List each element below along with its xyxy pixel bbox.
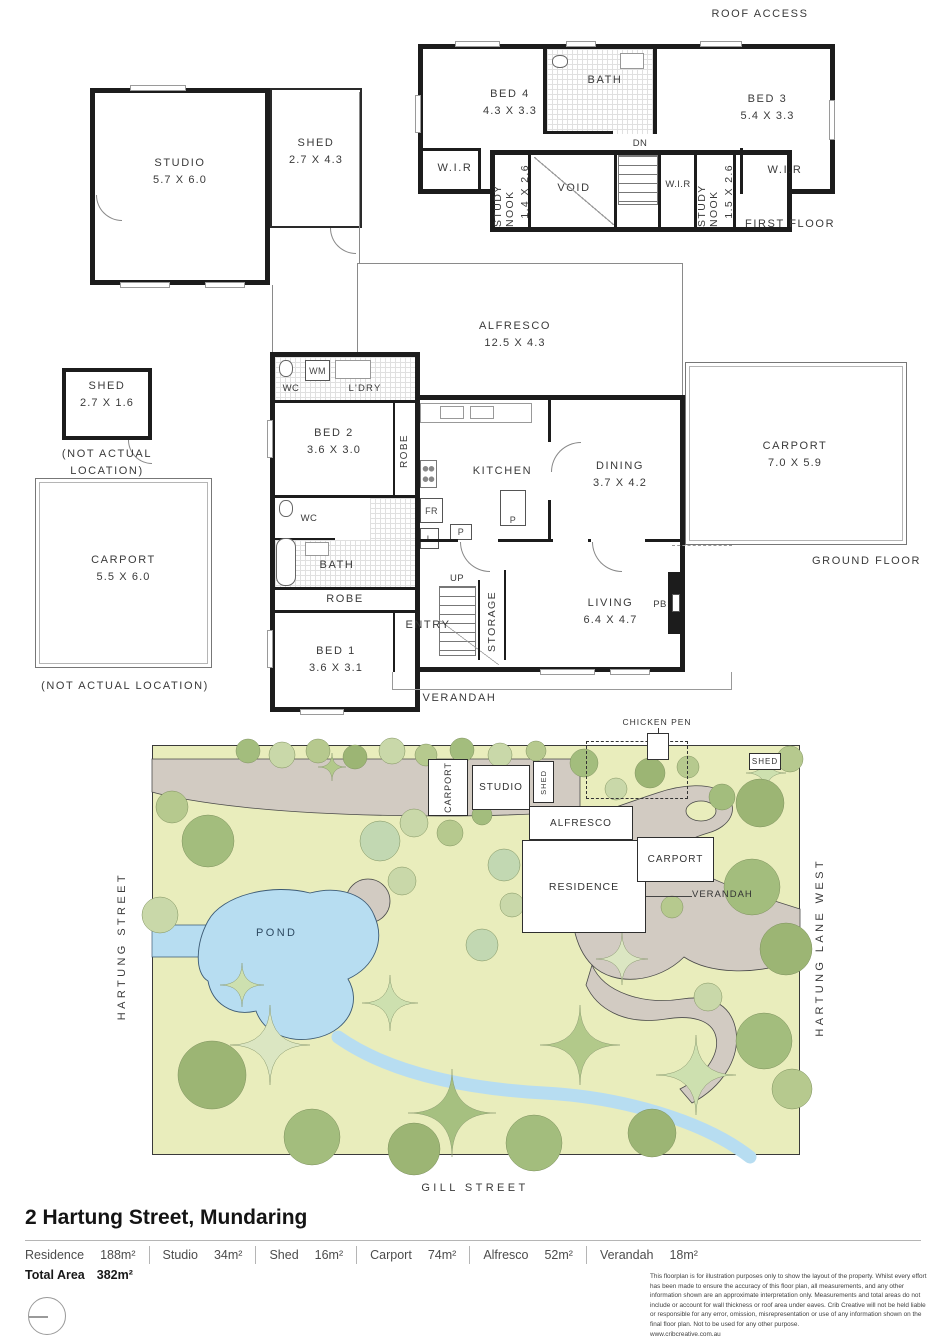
sink-icon [470, 406, 494, 419]
window [130, 85, 186, 91]
fireplace-inner [672, 594, 680, 612]
area-item: Carport74m² [357, 1246, 470, 1264]
area-summary: Residence188m² Studio34m² Shed16m² Carpo… [25, 1246, 711, 1264]
verandah-outline [392, 672, 732, 690]
street-right-label: HARTUNG LANE WEST [814, 858, 826, 1058]
wall [733, 155, 736, 227]
window [120, 282, 170, 288]
storage-label: STORAGE [480, 585, 504, 657]
bed4-label: BED 44.3 X 3.3 [455, 86, 565, 120]
wall [423, 148, 481, 151]
wall [548, 500, 551, 542]
carport-right-label: CARPORT7.0 X 5.9 [710, 438, 880, 472]
site-carport-west: CARPORT [428, 759, 468, 816]
site-plan: CARPORT STUDIO SHED ALFRESCO RESIDENCE C… [152, 745, 800, 1155]
site-studio: STUDIO [472, 765, 530, 810]
bed2-label: BED 23.6 X 3.0 [275, 425, 393, 459]
shed-attached-label: SHED2.7 X 4.3 [274, 135, 358, 169]
chicken-pen-box [647, 733, 669, 760]
kitchen-label: KITCHEN [445, 463, 560, 480]
shower-floor [370, 498, 415, 540]
dn-label: DN [622, 137, 658, 152]
street-bottom-label: GILL STREET [395, 1182, 555, 1194]
dining-label: DINING3.7 X 4.2 [560, 458, 680, 492]
area-item: Alfresco52m² [470, 1246, 587, 1264]
page-title: 2 Hartung Street, Mundaring [25, 1206, 307, 1230]
residence-left-wing: WC WM L'DRY BED 23.6 X 3.0 ROBE WC BATH … [270, 352, 420, 712]
roof-access-label: ROOF ACCESS [705, 6, 815, 23]
carport-left-note: (NOT ACTUAL LOCATION) [20, 678, 230, 695]
chicken-pen-fence [586, 741, 688, 799]
site-shed-mid: SHED [533, 761, 554, 803]
carport-left-label: CARPORT5.5 X 6.0 [40, 552, 207, 586]
wall [645, 539, 680, 542]
area-item: Verandah18m² [587, 1246, 711, 1264]
washing-machine: WM [305, 360, 330, 381]
wall [740, 148, 743, 194]
toilet-icon [552, 55, 568, 68]
wall [588, 539, 591, 542]
wir-right-label: W.I.R [745, 162, 825, 179]
boundary-line [359, 92, 360, 263]
toilet-icon [279, 360, 293, 377]
area-item: Residence188m² [25, 1246, 150, 1264]
study-nook-left-label: STUDY NOOK 1.4 X 2.6 [495, 155, 527, 227]
shed-small-note: (NOT ACTUAL LOCATION) [32, 446, 182, 480]
ground-floor-title: GROUND FLOOR [812, 553, 912, 570]
window [415, 95, 421, 133]
site-shed-ne: SHED [749, 753, 781, 770]
chicken-pen-label: CHICKEN PEN [592, 717, 722, 727]
site-carport-east: CARPORT [637, 837, 714, 882]
pond-label: POND [256, 927, 297, 939]
site-verandah-label: VERANDAH [692, 889, 753, 900]
wall [614, 155, 617, 227]
fridge-box: FR [420, 498, 443, 523]
basin-icon [305, 542, 329, 556]
wir-mid-label: W.I.R [660, 178, 696, 193]
basin-icon [620, 53, 644, 69]
window [267, 630, 273, 668]
wall [653, 49, 657, 134]
door-arc [330, 228, 356, 254]
chicken-pen-leader [658, 728, 659, 734]
site-alfresco: ALFRESCO [529, 806, 633, 840]
window [455, 41, 500, 47]
pantry-box: P [450, 524, 472, 540]
bathtub-icon [276, 538, 296, 586]
site-residence: RESIDENCE [522, 840, 646, 933]
wall [420, 539, 458, 542]
up-label: UP [438, 572, 476, 587]
wall [548, 400, 551, 442]
studio-label: STUDIO5.7 X 6.0 [100, 155, 260, 189]
dashed-line [672, 545, 732, 546]
window [300, 709, 344, 715]
wc-mid-label: WC [289, 512, 329, 527]
window [566, 41, 596, 47]
area-item: Shed16m² [256, 1246, 357, 1264]
divider [25, 1240, 921, 1241]
shed-small-label: SHED2.7 X 1.6 [62, 378, 152, 412]
wall [275, 587, 415, 590]
wc-top-label: WC [275, 382, 307, 397]
compass-icon [28, 1297, 66, 1335]
stove-icon [420, 460, 437, 488]
wir-left-label: W.I.R [426, 160, 484, 177]
window [205, 282, 245, 288]
total-area: Total Area 382m² [25, 1268, 133, 1282]
robe-top-label: ROBE [395, 407, 413, 495]
stairs-down [618, 155, 658, 205]
first-floor-title: FIRST FLOOR [745, 216, 835, 233]
entry-label: ENTRY [396, 617, 460, 634]
window [267, 420, 273, 458]
verandah-leader-line [646, 896, 692, 897]
wall [393, 612, 395, 672]
robe-bottom-label: ROBE [275, 591, 415, 608]
ff-bath-label: BATH [565, 72, 645, 89]
pantry-box: P [500, 490, 526, 526]
wall [543, 131, 613, 134]
laundry-label: L'DRY [325, 382, 405, 397]
disclaimer-text: This floorplan is for illustration purpo… [650, 1272, 933, 1339]
bed1-label: BED 13.6 X 3.1 [275, 643, 397, 677]
bath-label: BATH [297, 557, 377, 574]
void-diagonal [534, 157, 614, 225]
verandah-label: VERANDAH [412, 690, 507, 707]
window [700, 41, 742, 47]
boundary-line [272, 285, 273, 352]
alfresco-label: ALFRESCO12.5 X 4.3 [425, 318, 605, 352]
door-arc [592, 542, 622, 572]
window [829, 100, 835, 140]
street-left-label: HARTUNG STREET [116, 872, 128, 1032]
study-nook-right-label: STUDY NOOK 1.5 X 2.6 [699, 155, 731, 227]
floorplan-page: ROOF ACCESS BATH BED 44.3 X 3.3 BED 35.4… [0, 0, 946, 1339]
trough-icon [335, 360, 371, 379]
area-item: Studio34m² [150, 1246, 257, 1264]
website-link: www.cribcreative.com.au [650, 1331, 721, 1338]
wall [528, 155, 531, 227]
wall [498, 539, 553, 542]
wall [504, 570, 506, 660]
sink-icon [440, 406, 464, 419]
door-arc [460, 542, 490, 572]
bed3-label: BED 35.4 X 3.3 [700, 91, 835, 125]
